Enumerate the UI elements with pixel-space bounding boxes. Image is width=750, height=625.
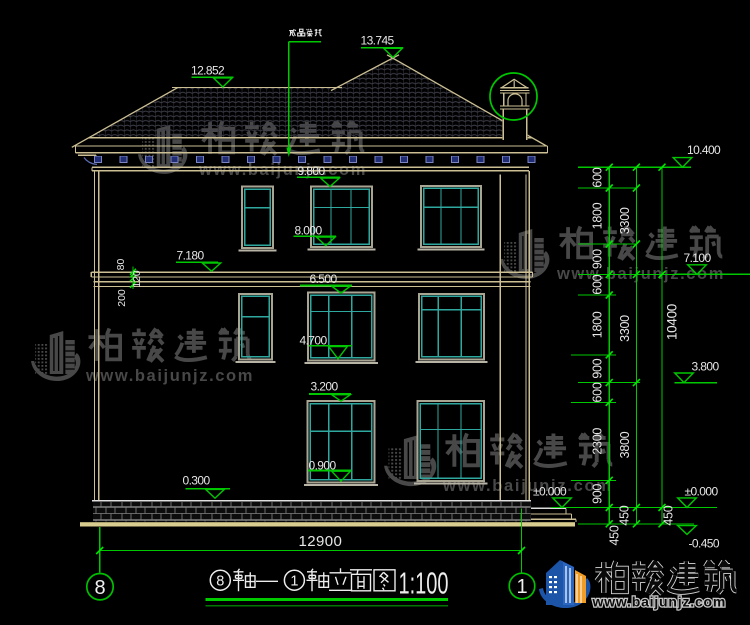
svg-text:9.800: 9.800: [298, 164, 326, 178]
svg-text:3.800: 3.800: [692, 360, 720, 374]
svg-text:2300: 2300: [591, 428, 605, 455]
svg-text:900: 900: [591, 484, 605, 504]
svg-text:12.852: 12.852: [191, 64, 225, 78]
svg-text:10.400: 10.400: [687, 143, 721, 157]
svg-text:3300: 3300: [618, 315, 632, 342]
svg-text:www.baijunjz.com: www.baijunjz.com: [198, 161, 367, 179]
svg-text:±0.000: ±0.000: [685, 485, 719, 499]
svg-text:7.180: 7.180: [177, 249, 205, 263]
svg-text:80: 80: [115, 259, 127, 271]
svg-text:200: 200: [116, 289, 128, 307]
svg-text:900: 900: [591, 249, 605, 269]
svg-text:1: 1: [290, 574, 298, 590]
svg-text:www.baijunjz.com: www.baijunjz.com: [85, 367, 254, 385]
svg-text:1: 1: [516, 576, 527, 598]
svg-text:3800: 3800: [618, 431, 632, 458]
svg-text:8: 8: [216, 574, 224, 590]
svg-text:0.300: 0.300: [183, 474, 211, 488]
svg-text:6.500: 6.500: [310, 272, 338, 286]
svg-text:600: 600: [591, 274, 605, 294]
svg-text:900: 900: [591, 358, 605, 378]
svg-text:8: 8: [94, 577, 105, 599]
svg-text:1:100: 1:100: [399, 567, 449, 600]
svg-text:8.000: 8.000: [295, 223, 323, 237]
svg-text:±0.000: ±0.000: [533, 485, 567, 499]
svg-text:450: 450: [618, 505, 632, 525]
svg-text:13.745: 13.745: [361, 33, 395, 47]
svg-text:450: 450: [662, 505, 676, 525]
svg-text:7.100: 7.100: [684, 251, 712, 265]
svg-text:www.baijunjz.com: www.baijunjz.com: [442, 477, 613, 495]
svg-text:600: 600: [591, 382, 605, 402]
svg-text:12900: 12900: [299, 533, 343, 550]
svg-text:-0.450: -0.450: [689, 537, 720, 551]
svg-text:600: 600: [591, 167, 605, 187]
svg-text:1800: 1800: [591, 202, 605, 229]
svg-text:450: 450: [608, 525, 622, 545]
svg-text:10400: 10400: [665, 304, 680, 340]
svg-text:120: 120: [131, 270, 143, 288]
svg-text:1800: 1800: [591, 311, 605, 338]
svg-text:3.200: 3.200: [311, 379, 339, 393]
svg-text:3300: 3300: [618, 207, 632, 234]
svg-text:www.baijunjz.com: www.baijunjz.com: [592, 594, 727, 610]
